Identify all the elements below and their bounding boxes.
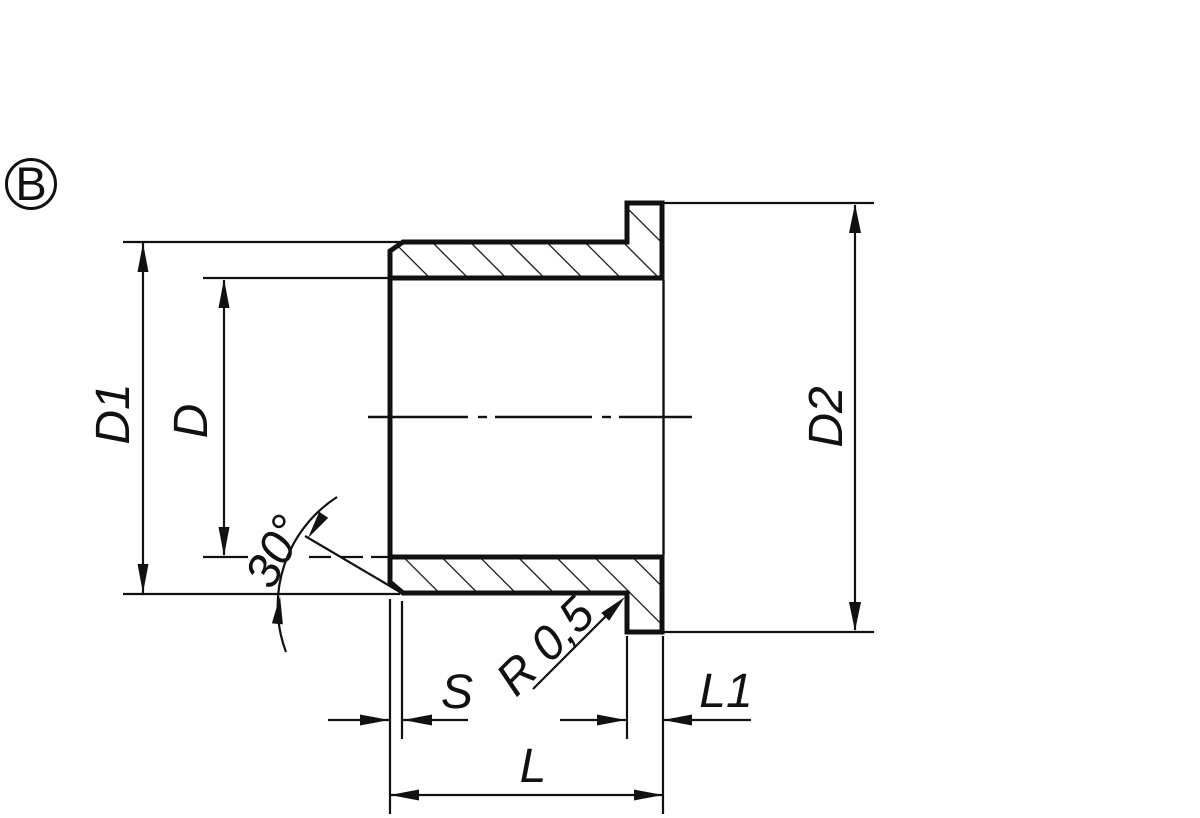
s-arrow-left [360,715,389,726]
bushing-upper-wall [390,203,662,278]
l1-arrow-right [663,715,692,726]
label-l1: L1 [699,668,752,716]
d1-arrow-up [138,243,149,272]
d1-arrow-down [138,564,149,593]
l-arrow-right [634,790,663,801]
d-arrow-up [219,279,230,308]
label-l: L [520,743,547,791]
dimension-l1 [560,636,751,814]
label-d: D [168,404,216,439]
dimension-d [203,278,389,557]
l1-arrow-left [597,715,626,726]
s-arrow-right [403,715,432,726]
label-s: S [441,669,473,717]
technical-drawing-page: D1 D D2 S L1 L 30° R 0,5 B [0,0,1200,818]
bushing-lower-wall [390,557,662,632]
chamfer-extension-line [305,536,400,592]
d-arrow-down [219,527,230,556]
d2-arrow-up [849,204,861,233]
label-d1: D1 [90,383,138,444]
l-arrow-left [390,790,419,801]
view-label-circle: B [5,158,57,210]
label-d2: D2 [803,386,851,447]
d2-arrow-down [849,602,861,631]
view-label: B [15,160,46,207]
